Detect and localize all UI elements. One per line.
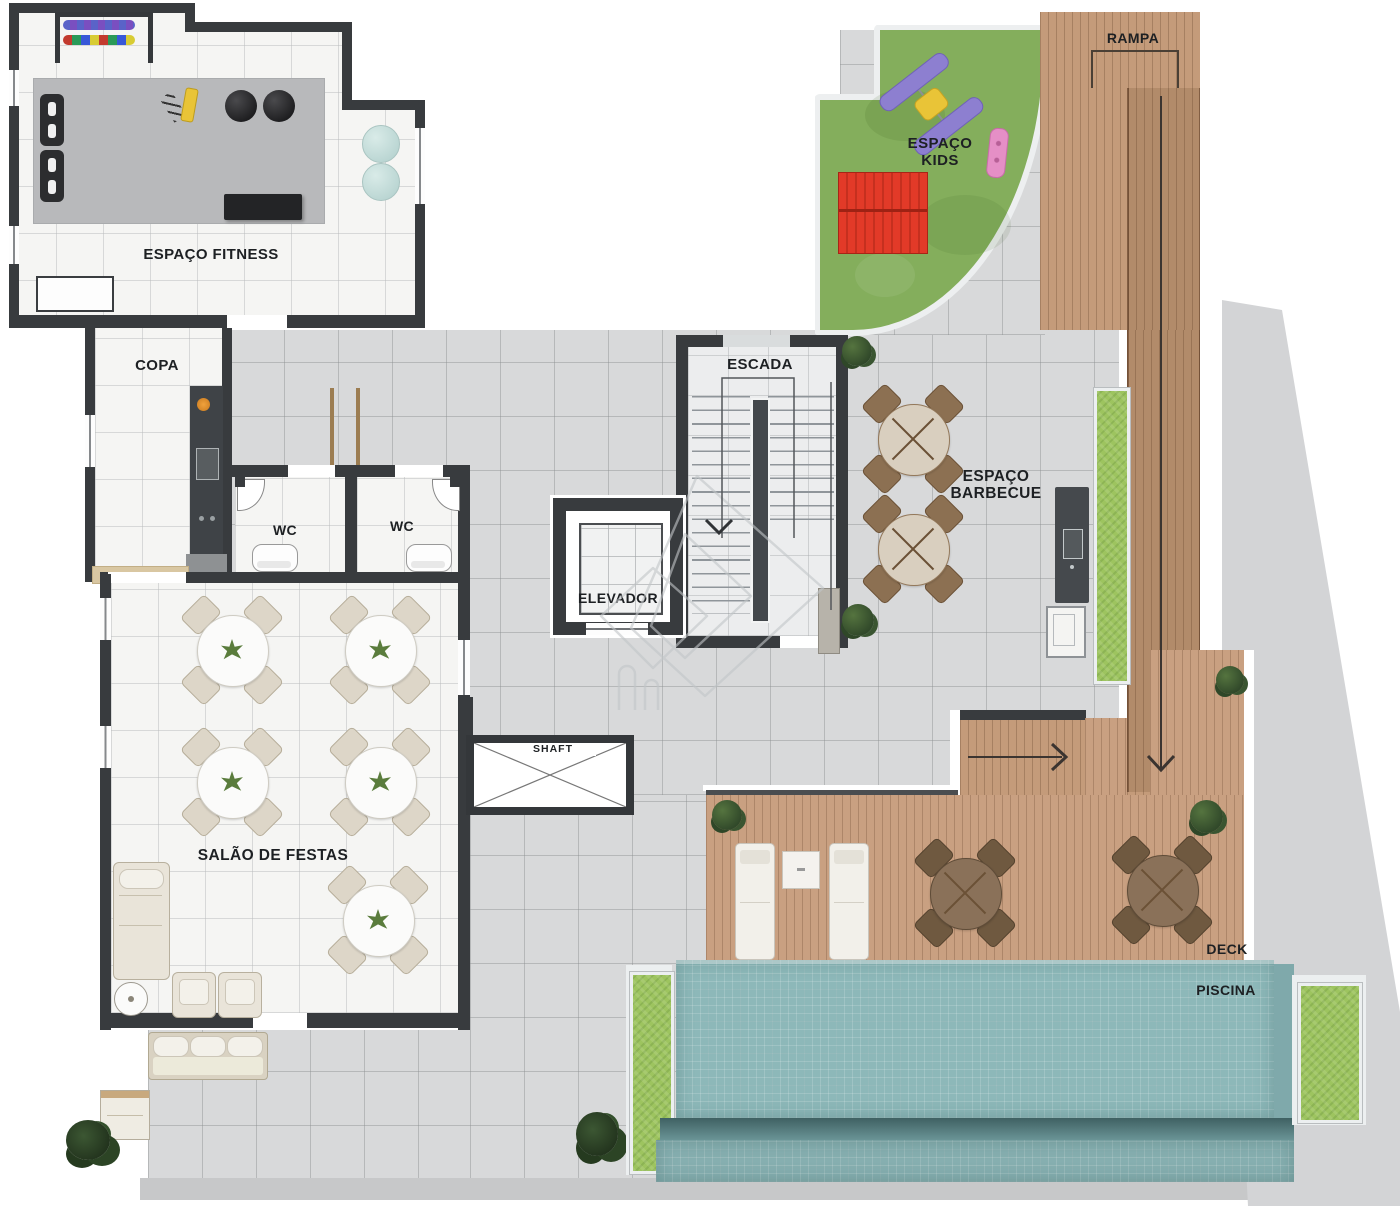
pool-step-shadow <box>660 1118 1294 1140</box>
deck-side-table <box>782 851 820 889</box>
barbecue-table <box>861 497 965 601</box>
toilet <box>252 544 298 572</box>
wall-segment <box>9 3 19 328</box>
sink-corner <box>235 477 245 487</box>
window <box>85 415 95 467</box>
ramp-right-border <box>1200 4 1212 654</box>
sofa-seat <box>153 1057 263 1075</box>
stair-treads <box>768 396 834 528</box>
kids-label-line2: KIDS <box>921 152 958 169</box>
window <box>458 640 470 695</box>
wall-segment <box>100 574 111 1030</box>
barbecue-cabinet <box>1046 606 1086 658</box>
stove-dot <box>199 516 204 521</box>
bench-pad <box>48 102 56 116</box>
pool-edge-highlight <box>676 960 1274 964</box>
kids-playhouse <box>838 172 928 254</box>
sink-corner <box>450 477 460 487</box>
window <box>100 726 111 768</box>
sun-lounger <box>829 843 869 960</box>
sofa-seam <box>119 895 162 896</box>
sofa-seam <box>119 925 162 926</box>
wall-segment <box>9 315 425 328</box>
kettlebell <box>263 90 295 122</box>
wall-segment <box>345 477 357 583</box>
counter-sink <box>1063 529 1083 559</box>
dumbbell-row <box>63 35 135 45</box>
pool-planter-right <box>1298 983 1362 1123</box>
wc-left-label: WC <box>255 523 315 539</box>
exercise-ball <box>362 125 400 163</box>
outdoor-sofa <box>148 1032 268 1080</box>
window <box>100 598 111 640</box>
shaft-box: SHAFT <box>466 735 634 815</box>
chaise-sofa <box>113 862 170 980</box>
kids-label-line1: ESPAÇO <box>908 135 973 152</box>
wall-segment <box>342 100 425 110</box>
toilet-tank <box>411 561 445 568</box>
plant <box>66 1120 110 1160</box>
window <box>9 226 19 264</box>
kettlebell <box>225 90 257 122</box>
pool-lower <box>656 1140 1294 1182</box>
armchair-cushion <box>179 979 209 1005</box>
garden-bench <box>818 588 840 654</box>
chair-wood-frame <box>101 1091 149 1098</box>
deck-table <box>1110 838 1214 942</box>
barbecue-label-line2: BARBECUE <box>950 485 1041 502</box>
party-table <box>328 598 432 702</box>
door-leaf <box>723 335 790 347</box>
workout-bench <box>40 94 64 146</box>
armchair <box>218 972 262 1018</box>
bench-pad <box>48 124 56 138</box>
plant <box>576 1112 618 1156</box>
elevador-label: ELEVADOR <box>561 591 675 607</box>
sofa-cushion <box>119 869 164 889</box>
barbecue-counter <box>1055 487 1089 603</box>
stove-dot <box>210 516 215 521</box>
floor-plan: ESPAÇO KIDS RAMPA <box>0 0 1400 1206</box>
faucet-dot <box>1070 565 1074 569</box>
kids-label: ESPAÇO KIDS <box>880 136 1000 170</box>
door-opening <box>227 315 287 328</box>
stair-treads <box>692 396 750 614</box>
deck-patch <box>1085 718 1127 795</box>
window <box>415 128 425 204</box>
fitness-bench-white <box>36 276 114 312</box>
planter-strip <box>1094 388 1130 684</box>
table-mark <box>797 868 805 871</box>
toilet-tank <box>257 561 291 568</box>
party-table <box>328 730 432 834</box>
barbecue-label-line1: ESPAÇO <box>963 468 1030 485</box>
dumbbell-row <box>63 20 135 30</box>
door-swing <box>356 388 360 465</box>
lounger-headrest <box>740 850 770 864</box>
wall-segment <box>222 328 232 582</box>
party-table <box>180 730 284 834</box>
stair-stringer <box>751 398 770 623</box>
party-table <box>326 868 430 972</box>
wall-segment <box>185 22 352 32</box>
window <box>9 70 19 106</box>
wc-right-label: WC <box>372 519 432 535</box>
deck-label: DECK <box>1167 942 1287 958</box>
deck-right-border <box>1244 650 1254 962</box>
exercise-ball <box>362 163 400 201</box>
bush <box>1190 800 1223 833</box>
deck-table <box>913 841 1017 945</box>
barbecue-label: ESPAÇO BARBECUE <box>940 468 1052 503</box>
lounger-seam <box>740 902 770 903</box>
ramp-bracket <box>1091 50 1179 88</box>
copa-label: COPA <box>107 358 207 375</box>
bush <box>1216 666 1244 694</box>
door-opening <box>108 572 186 583</box>
lounger-headrest <box>834 850 864 864</box>
shaft-label: SHAFT <box>510 744 596 756</box>
side-table-dot <box>128 996 134 1002</box>
door-opening <box>395 465 443 477</box>
armchair-cushion <box>225 979 255 1005</box>
ramp-label: RAMPA <box>1073 31 1193 47</box>
ramp-leg-cap <box>950 710 960 795</box>
sofa-cushion <box>227 1036 263 1057</box>
bush <box>842 604 874 636</box>
elevator-door <box>586 623 648 635</box>
door-swing <box>330 388 334 465</box>
cabinet-panel <box>1053 614 1075 646</box>
bench-pad <box>48 180 56 194</box>
side-table-round <box>114 982 148 1016</box>
workout-bench <box>40 150 64 202</box>
sofa-cushion <box>190 1036 226 1057</box>
party-table <box>180 598 284 702</box>
wall-segment <box>342 22 352 110</box>
bench-pad <box>48 158 56 172</box>
dumbbell-rack <box>55 12 153 63</box>
sun-lounger <box>735 843 775 960</box>
gym-shelf <box>224 194 302 220</box>
sofa-cushion <box>153 1036 189 1057</box>
kitchen-counter <box>190 386 223 554</box>
bush <box>712 800 742 830</box>
wall-segment <box>461 697 473 737</box>
escada-label: ESCADA <box>700 357 820 374</box>
ramp-leg-wall <box>956 710 1086 720</box>
chair-seam <box>107 1115 143 1116</box>
salao-label: SALÃO DE FESTAS <box>163 847 383 864</box>
bush <box>842 336 872 366</box>
playhouse-ridge <box>839 209 927 212</box>
ramp-leg <box>960 720 1085 795</box>
fitness-label: ESPAÇO FITNESS <box>106 247 316 264</box>
counter-plant <box>197 398 210 411</box>
counter-sink <box>196 448 219 480</box>
door-opening <box>253 1013 307 1028</box>
toilet <box>406 544 452 572</box>
door-opening <box>288 465 335 477</box>
armchair <box>172 972 216 1018</box>
piscina-label: PISCINA <box>1166 983 1286 999</box>
lounger-seam <box>834 902 864 903</box>
